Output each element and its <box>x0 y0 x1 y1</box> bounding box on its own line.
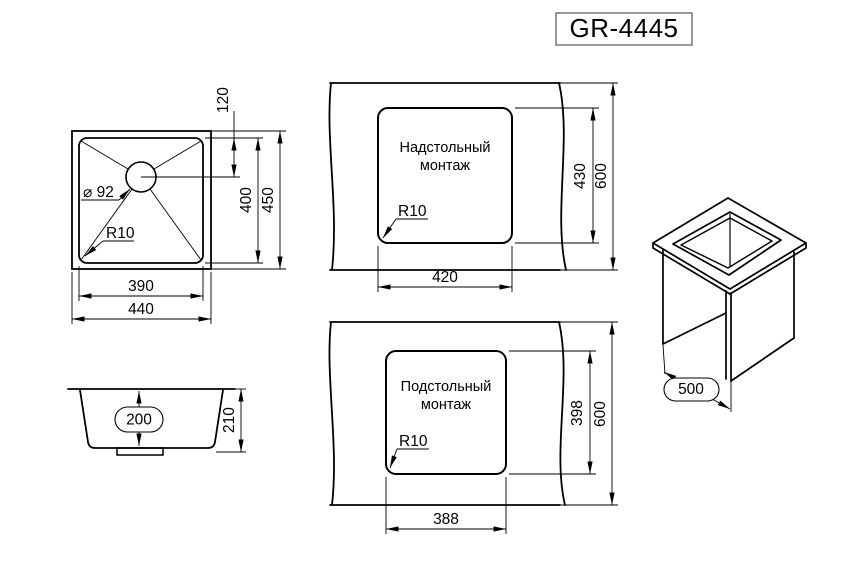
break-line-right <box>559 322 565 505</box>
model-number: GR-4445 <box>570 13 679 43</box>
dim-200-label: 200 <box>126 412 152 429</box>
dim-drain-offset: 120 <box>215 87 234 177</box>
diameter-label: ⌀ 92 <box>83 184 114 201</box>
dim-cutout-width: 420 <box>378 246 512 292</box>
break-line-left <box>329 83 334 270</box>
break-line-right <box>559 83 566 270</box>
side-view: 200 210 <box>68 389 246 455</box>
dim-500-label: 500 <box>678 381 704 398</box>
dim-450-label: 450 <box>260 187 277 213</box>
technical-drawing: GR-4445 120 400 <box>0 0 853 580</box>
dim-cutout-height: 430 <box>515 108 599 243</box>
dim-bowl-height: 400 <box>238 138 258 263</box>
dim-390-label: 390 <box>128 278 154 295</box>
dim-398-label: 398 <box>569 400 586 426</box>
mount-type-line2: монтаж <box>420 158 471 174</box>
mount-type-line2: монтаж <box>421 397 472 413</box>
drawing-sheet: GR-4445 120 400 <box>0 0 853 580</box>
radius-label: R10 <box>398 203 427 220</box>
dim-outer-height: 450 <box>260 131 280 269</box>
top-mount-diagram: Надстольный монтаж R10 430 600 420 <box>329 83 618 292</box>
dim-inner-depth: 200 <box>115 391 163 446</box>
bowl-opening-inner <box>681 218 772 268</box>
dim-388-label: 388 <box>433 511 459 528</box>
dim-420-label: 420 <box>432 269 458 286</box>
dim-430-label: 430 <box>572 163 589 189</box>
dim-440-label: 440 <box>128 301 154 318</box>
dim-cabinet-width: 500 <box>663 345 731 412</box>
drain-fitting <box>117 448 163 455</box>
dim-400-label: 400 <box>238 187 255 213</box>
dim-600-label: 600 <box>593 163 610 189</box>
radius-label: R10 <box>399 433 428 450</box>
dim-600-label: 600 <box>592 401 609 427</box>
iso-view: 500 <box>653 198 806 412</box>
title-box: GR-4445 <box>556 13 692 45</box>
under-mount-diagram: Подстольный монтаж R10 398 600 388 <box>329 322 618 534</box>
dim-bowl-width: 390 <box>79 266 203 301</box>
break-line-left <box>329 322 334 505</box>
dim-counter-depth: 600 <box>593 83 613 270</box>
callout-cutout-radius: R10 <box>383 203 428 238</box>
radius-label: R10 <box>106 225 135 242</box>
mount-type-line1: Надстольный <box>399 140 490 156</box>
mount-type-line1: Подстольный <box>401 379 492 395</box>
dim-210-label: 210 <box>221 407 238 433</box>
dim-120-label: 120 <box>215 87 232 113</box>
dim-cutout-height: 398 <box>509 351 596 474</box>
cutout-rect <box>378 108 512 243</box>
callout-cutout-radius: R10 <box>390 433 429 468</box>
callout-corner-radius: R10 <box>85 225 135 256</box>
cabinet-walls <box>663 249 794 381</box>
dim-counter-depth: 600 <box>592 322 612 505</box>
dim-outer-depth: 210 <box>216 389 246 452</box>
callout-drain-diameter: ⌀ 92 <box>81 184 130 201</box>
top-view: 120 400 450 390 440 <box>72 87 286 324</box>
